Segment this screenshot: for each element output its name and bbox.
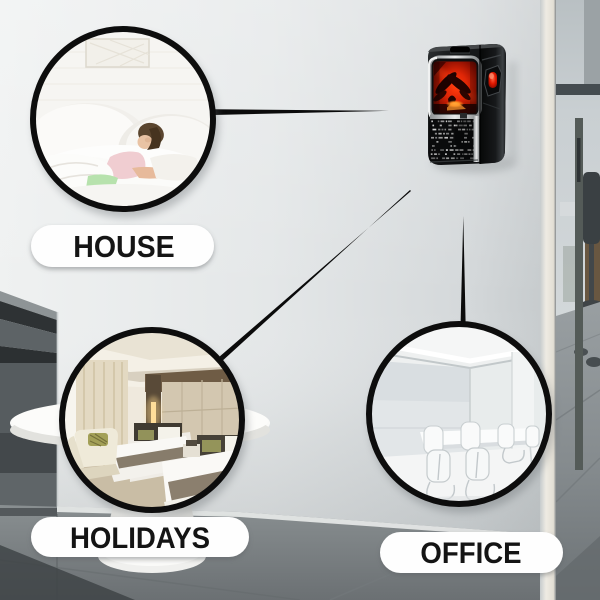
svg-text:HOUSE: HOUSE <box>73 230 174 264</box>
svg-text:OFFICE: OFFICE <box>420 537 521 570</box>
svg-text:HOLIDAYS: HOLIDAYS <box>70 522 210 555</box>
